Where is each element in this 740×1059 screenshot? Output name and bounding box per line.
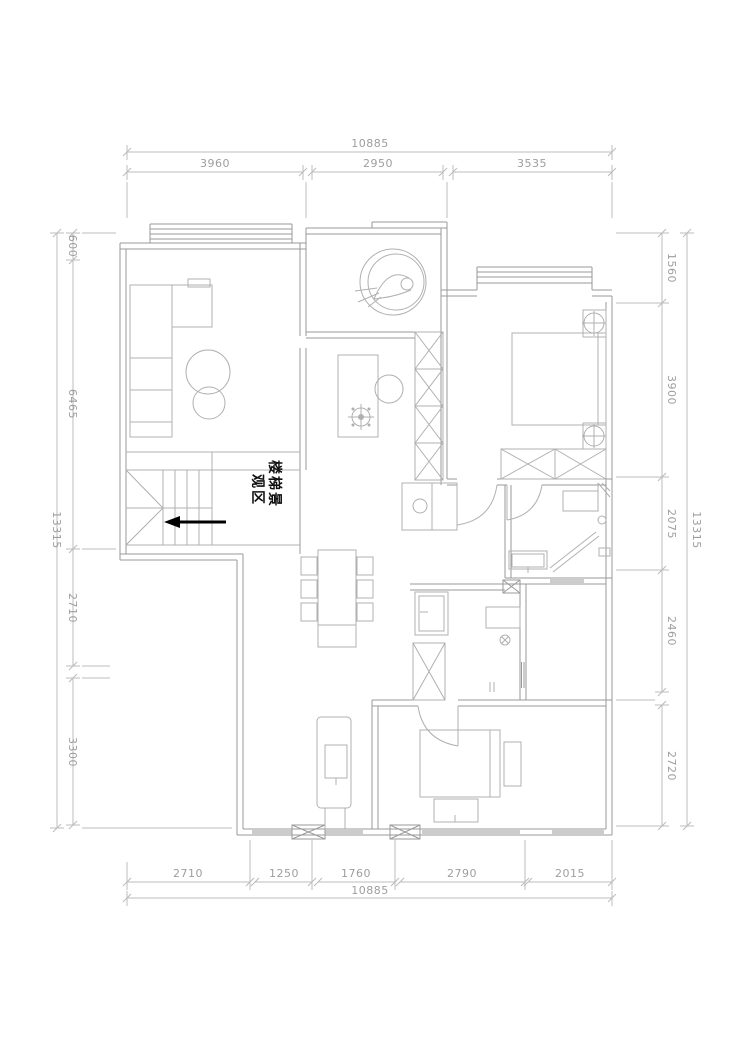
dim-right-seg-4: 2720 (665, 751, 678, 781)
walls (120, 222, 612, 835)
dim-bottom-seg-1: 1250 (269, 867, 299, 880)
dim-left-seg-2: 2710 (66, 593, 79, 623)
sofa (130, 279, 212, 437)
bay-window-bedroom (477, 267, 592, 290)
dim-left-seg-0: 600 (66, 235, 79, 258)
shower-partition (550, 532, 599, 572)
chair (357, 557, 373, 575)
dim-top-seg-2: 3535 (517, 157, 547, 170)
bay-window-top-left (150, 224, 292, 243)
dim-bottom-seg-0: 2710 (173, 867, 203, 880)
stair-direction-arrow (164, 516, 226, 528)
bed-master (512, 333, 606, 425)
dimensions-bottom: 2710 1250 1760 2790 2015 10885 (123, 840, 616, 906)
dining-table (301, 550, 373, 647)
dim-top-total: 10885 (351, 137, 389, 150)
dim-right-seg-2: 2075 (665, 509, 678, 539)
floor-plan-page: 楼梯景 观区 (0, 0, 740, 1059)
corner-shelf (598, 483, 610, 511)
drain (598, 516, 606, 524)
round-tub-figure (355, 249, 426, 315)
chair (301, 603, 317, 621)
dim-right-total: 13315 (690, 511, 703, 549)
door-bottom-bedroom (418, 706, 458, 746)
dim-bottom-seg-2: 1760 (341, 867, 371, 880)
floor-plan-canvas: 楼梯景 观区 (0, 0, 740, 1059)
dimensions-top: 10885 3960 2950 3535 (123, 137, 616, 218)
dim-top-seg-0: 3960 (200, 157, 230, 170)
hall-cabinet (415, 332, 443, 480)
stair-area-label: 楼梯景 观区 (249, 460, 283, 515)
chair (301, 580, 317, 598)
desk-bottom-room (434, 799, 478, 822)
nightstand-bottom (582, 423, 606, 449)
washbasin-cabinet (402, 483, 457, 530)
coffee-tables (186, 350, 230, 419)
bed-bottom (420, 730, 500, 797)
chair (375, 375, 403, 403)
dim-bottom-seg-4: 2015 (555, 867, 585, 880)
dim-bottom-seg-3: 2790 (447, 867, 477, 880)
bathroom-window (550, 580, 584, 582)
door-bathroom (507, 485, 542, 520)
dim-right-seg-3: 2460 (665, 616, 678, 646)
bath-counter (563, 491, 598, 511)
chair (357, 580, 373, 598)
dim-left-seg-1: 6465 (66, 389, 79, 419)
floor-drain-symbol (348, 404, 374, 430)
dim-right-seg-1: 3900 (665, 375, 678, 405)
kitchen-window (522, 662, 525, 688)
fridge (415, 592, 448, 635)
kitchen (413, 592, 520, 700)
dim-top-seg-1: 2950 (363, 157, 393, 170)
nightstand-bottom-room (504, 742, 521, 786)
chair (301, 557, 317, 575)
door-bedroom (457, 485, 497, 525)
dimensions-right: 1560 3900 2075 2460 2720 13315 (616, 229, 703, 830)
bathroom-fixtures (509, 483, 610, 573)
dim-left-seg-3: 3300 (66, 737, 79, 767)
island-desk (338, 355, 403, 437)
dim-left-total: 13315 (50, 511, 63, 549)
bottom-windows (252, 831, 604, 833)
bench (318, 625, 356, 647)
chair (357, 603, 373, 621)
dim-bottom-total: 10885 (351, 884, 389, 897)
counter (486, 607, 520, 628)
wardrobe (501, 449, 606, 479)
island-cabinet (317, 717, 351, 829)
dim-right-seg-0: 1560 (665, 253, 678, 283)
